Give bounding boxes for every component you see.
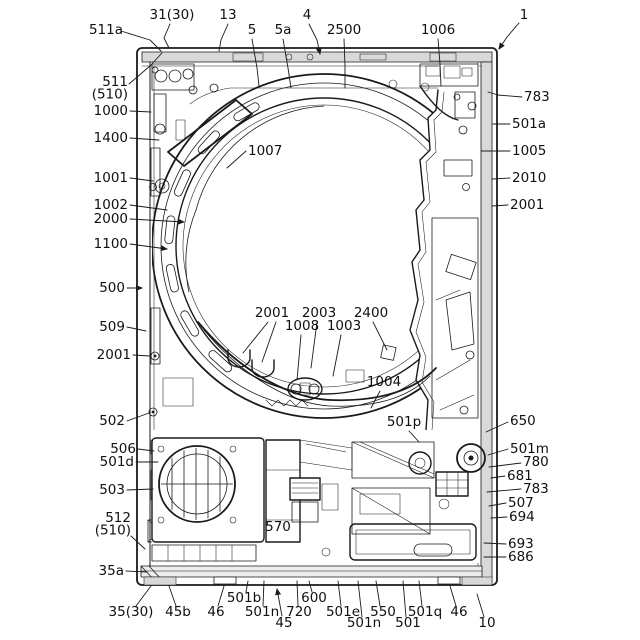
ref-35a: 35a bbox=[99, 563, 124, 579]
foot-right bbox=[462, 577, 492, 585]
ref-2500: 2500 bbox=[327, 22, 361, 38]
ref-500: 500 bbox=[99, 280, 125, 296]
ref-1003-leader bbox=[333, 335, 341, 376]
ref-35-30-leader bbox=[136, 586, 151, 606]
ref-511-510: 511(510) bbox=[92, 74, 128, 103]
ref-2010: 2010 bbox=[512, 170, 546, 186]
ref-2001-r: 2001 bbox=[510, 197, 544, 213]
ref-2500-leader bbox=[344, 39, 345, 88]
ref-1007: 1007 bbox=[248, 143, 282, 159]
ref-783-t: 783 bbox=[524, 89, 550, 105]
ref-4: 4 bbox=[303, 7, 312, 23]
ref-2001-l: 2001 bbox=[97, 347, 131, 363]
ref-5: 5 bbox=[248, 22, 257, 38]
ref-31-30: 31(30) bbox=[150, 7, 195, 23]
ref-1-leader bbox=[499, 23, 519, 49]
ref-501n-1: 501n bbox=[245, 604, 279, 620]
cup-2 bbox=[252, 360, 274, 377]
ref-720: 720 bbox=[286, 604, 312, 620]
ref-45b-leader bbox=[169, 586, 176, 606]
foot-left bbox=[144, 577, 176, 585]
ref-1006: 1006 bbox=[421, 22, 455, 38]
ref-1100: 1100 bbox=[94, 236, 128, 252]
ref-2400-leader bbox=[373, 322, 387, 350]
ref-2001-r-leader bbox=[492, 205, 508, 206]
ref-600: 600 bbox=[301, 590, 327, 606]
ref-686: 686 bbox=[508, 549, 534, 565]
ref-4-leader bbox=[309, 24, 320, 54]
ref-1000-leader bbox=[130, 111, 151, 112]
base-rail bbox=[141, 566, 482, 577]
ref-570: 570 bbox=[265, 519, 291, 535]
ref-2000: 2000 bbox=[94, 211, 128, 227]
ref-1008: 1008 bbox=[285, 318, 319, 334]
ref-512-510: 512(510) bbox=[95, 510, 131, 539]
ref-1005: 1005 bbox=[512, 143, 546, 159]
ref-681-leader bbox=[491, 476, 505, 478]
ref-511a: 511a bbox=[89, 22, 123, 38]
ref-35-30: 35(30) bbox=[109, 604, 154, 620]
ref-46-l-leader bbox=[218, 586, 224, 606]
ref-13: 13 bbox=[219, 7, 236, 23]
ref-1100-leader bbox=[130, 244, 167, 249]
ref-1400-leader bbox=[130, 138, 159, 140]
ref-2000-leader bbox=[130, 219, 184, 222]
ref-650: 650 bbox=[510, 413, 536, 429]
ref-46-r: 46 bbox=[450, 604, 467, 620]
ref-501-leader bbox=[403, 581, 406, 617]
ref-10-leader bbox=[477, 594, 484, 617]
bottom-machinery bbox=[152, 430, 485, 563]
ref-1: 1 bbox=[520, 7, 529, 23]
ref-13-leader bbox=[219, 24, 228, 51]
ref-5a: 5a bbox=[275, 22, 292, 38]
ref-5-leader bbox=[252, 39, 259, 86]
ref-46-r-leader bbox=[450, 586, 456, 606]
ref-694: 694 bbox=[509, 509, 535, 525]
ref-1002-leader bbox=[130, 205, 167, 210]
ref-501p: 501p bbox=[387, 414, 421, 430]
inner-liner-edge bbox=[186, 106, 324, 292]
ref-501q: 501q bbox=[408, 604, 442, 620]
ref-31-30-leader bbox=[164, 24, 170, 48]
ref-503-leader bbox=[127, 489, 153, 490]
right-interior-panel bbox=[410, 64, 479, 430]
ref-1008-leader bbox=[297, 335, 301, 380]
ref-2010-leader bbox=[492, 178, 510, 179]
connector-block bbox=[290, 478, 320, 500]
ref-46-l: 46 bbox=[207, 604, 224, 620]
small-box bbox=[163, 378, 193, 406]
ref-694-leader bbox=[491, 517, 507, 518]
ref-509: 509 bbox=[99, 319, 125, 335]
top-left-cluster bbox=[152, 53, 456, 193]
ref-2001-c-leader bbox=[262, 322, 276, 362]
ref-502: 502 bbox=[99, 413, 125, 429]
ref-502-leader bbox=[127, 413, 149, 421]
ref-1007-leader bbox=[227, 151, 246, 168]
right-wall bbox=[481, 62, 492, 583]
ref-783-t-leader bbox=[488, 92, 522, 97]
ref-503: 503 bbox=[99, 482, 125, 498]
ref-2001-l-leader bbox=[133, 355, 150, 356]
ref-1000: 1000 bbox=[94, 103, 128, 119]
ref-2400: 2400 bbox=[354, 305, 388, 321]
feet bbox=[144, 577, 492, 585]
ref-5a-leader bbox=[283, 39, 291, 88]
ref-2001-c-leader bbox=[243, 322, 268, 353]
ref-1004: 1004 bbox=[367, 374, 401, 390]
ref-1400: 1400 bbox=[94, 130, 128, 146]
ref-780-leader bbox=[489, 463, 521, 467]
ref-512-510-leader bbox=[131, 536, 145, 549]
patent-figure-washing-machine-section: 511a31(30)1355a4250010061511(510)1000140… bbox=[0, 0, 640, 640]
ref-1001: 1001 bbox=[94, 170, 128, 186]
ref-550: 550 bbox=[370, 604, 396, 620]
ref-501d: 501d bbox=[100, 454, 134, 470]
ref-10: 10 bbox=[478, 615, 495, 631]
ref-501a: 501a bbox=[512, 116, 546, 132]
ref-45b: 45b bbox=[165, 604, 191, 620]
